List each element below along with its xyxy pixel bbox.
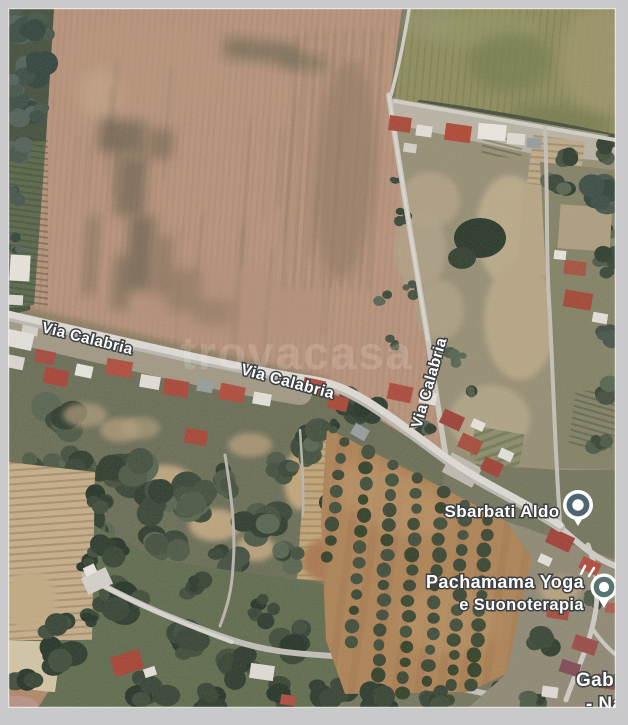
svg-text:e Suonoterapia: e Suonoterapia (459, 596, 584, 614)
svg-text:Pachamama Yoga: Pachamama Yoga (426, 572, 585, 592)
svg-text:Sbarbati Aldo: Sbarbati Aldo (444, 502, 559, 521)
svg-text:trovacasa: trovacasa (181, 327, 414, 379)
